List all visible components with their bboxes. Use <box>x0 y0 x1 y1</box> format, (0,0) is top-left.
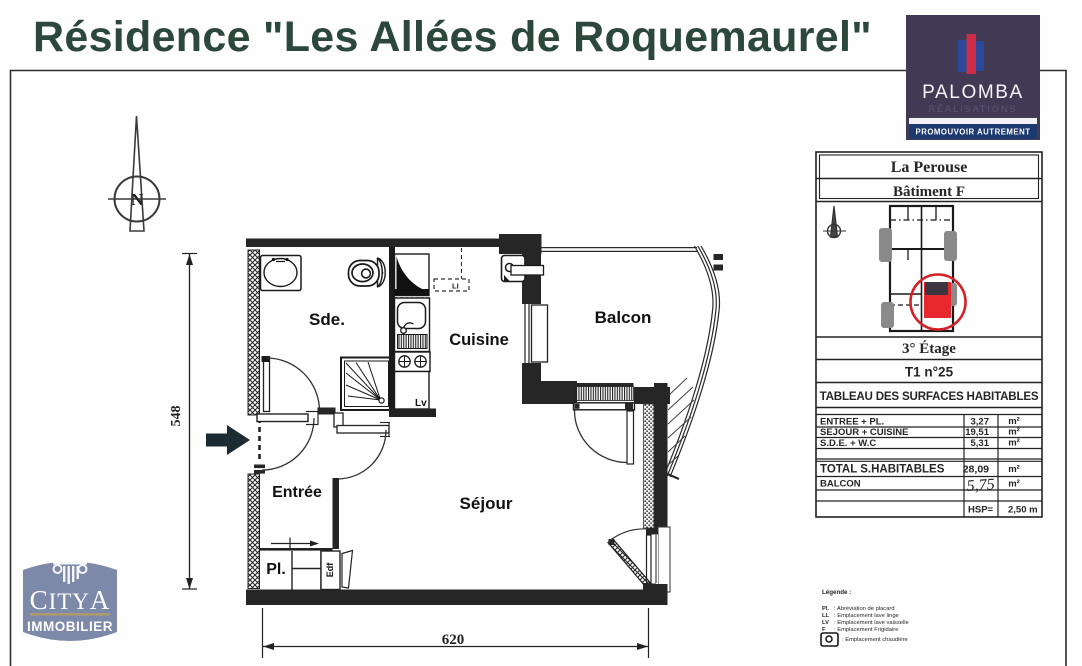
svg-text:3° Étage: 3° Étage <box>902 340 956 357</box>
svg-text:PALOMBA: PALOMBA <box>922 82 1024 103</box>
svg-text:TABLEAU DES SURFACES HABITABLE: TABLEAU DES SURFACES HABITABLES <box>820 390 1039 403</box>
svg-text:548: 548 <box>169 406 184 427</box>
svg-text:Edf: Edf <box>325 562 335 578</box>
svg-text:Résidence "Les Allées de Roque: Résidence "Les Allées de Roquemaurel" <box>33 13 872 61</box>
svg-text:BALCON: BALCON <box>820 479 861 490</box>
svg-text:TOTAL S.HABITABLES: TOTAL S.HABITABLES <box>820 464 945 476</box>
svg-text:SEJOUR + CUISINE: SEJOUR + CUISINE <box>820 427 908 438</box>
svg-text:Entrée: Entrée <box>272 484 322 501</box>
svg-text:Séjour: Séjour <box>460 494 513 513</box>
svg-text:CITYA: CITYA <box>30 585 111 615</box>
svg-text:La Perouse: La Perouse <box>891 159 968 176</box>
svg-text:LL: LL <box>822 613 830 619</box>
svg-text:Sde.: Sde. <box>309 310 345 329</box>
svg-text:: Emplacement lave linge: : Emplacement lave linge <box>834 613 899 619</box>
svg-text:: Emplacement chaudière: : Emplacement chaudière <box>842 637 908 643</box>
svg-text:19,51: 19,51 <box>965 427 989 438</box>
svg-text:RÉALISATIONS: RÉALISATIONS <box>929 104 1018 114</box>
svg-text:m²: m² <box>1008 416 1020 427</box>
svg-text:: Emplacement lave vaisselle: : Emplacement lave vaisselle <box>834 620 909 626</box>
svg-text:: Abréviation de placard: : Abréviation de placard <box>834 606 895 612</box>
svg-text:N: N <box>131 190 144 209</box>
svg-text:28,09: 28,09 <box>963 464 989 476</box>
svg-text:2,50 m: 2,50 m <box>1008 505 1038 516</box>
svg-text:T1 n°25: T1 n°25 <box>905 365 954 380</box>
svg-text:F: F <box>822 627 826 633</box>
svg-text:5,31: 5,31 <box>971 438 990 449</box>
svg-text:5,75: 5,75 <box>966 476 995 495</box>
svg-text:m²: m² <box>1008 464 1020 475</box>
svg-text:Bâtiment F: Bâtiment F <box>893 184 965 200</box>
svg-text:Légende :: Légende : <box>822 589 851 596</box>
svg-text:Cuisine: Cuisine <box>449 331 509 349</box>
svg-text:S.D.E. + W.C: S.D.E. + W.C <box>820 438 876 449</box>
svg-text:PROMOUVOIR AUTREMENT: PROMOUVOIR AUTREMENT <box>916 128 1031 137</box>
svg-text:620: 620 <box>442 632 465 648</box>
svg-text:Lv: Lv <box>415 398 427 409</box>
svg-text:: Emplacement Frigidaire: : Emplacement Frigidaire <box>834 627 898 633</box>
svg-text:Pl.: Pl. <box>822 606 829 612</box>
svg-text:IMMOBILIER: IMMOBILIER <box>27 619 113 634</box>
svg-text:m²: m² <box>1008 438 1020 449</box>
svg-text:Pl.: Pl. <box>266 561 286 578</box>
svg-text:Balcon: Balcon <box>595 308 652 327</box>
svg-text:m²: m² <box>1008 427 1020 438</box>
svg-text:LV: LV <box>822 620 829 626</box>
svg-text:m²: m² <box>1008 479 1020 490</box>
svg-text:LI: LI <box>452 282 459 291</box>
svg-text:HSP=: HSP= <box>968 505 994 516</box>
